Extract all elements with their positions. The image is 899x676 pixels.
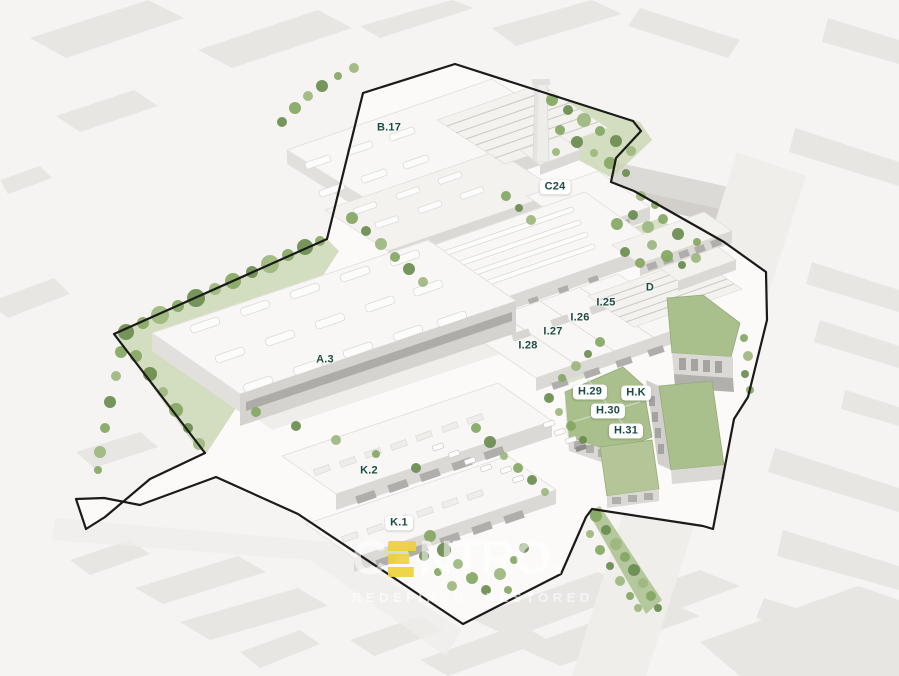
building-label-a3: A.3 <box>316 355 334 366</box>
masterplan-render: B.17 C24 A.3 I.25 I.26 I.27 I.28 D H.29 … <box>0 0 899 676</box>
building-label-d: D <box>646 283 654 294</box>
building-label-i26: I.26 <box>570 313 589 324</box>
building-label-k2: K.2 <box>360 466 378 477</box>
building-label-h31: H.31 <box>609 424 643 439</box>
building-label-h30: H.30 <box>591 404 625 419</box>
building-h-lower-row <box>600 440 659 508</box>
building-label-b17: B.17 <box>377 123 401 134</box>
building-label-i27: I.27 <box>543 327 562 338</box>
building-label-c24: C24 <box>540 180 571 195</box>
building-label-h29: H.29 <box>573 385 607 400</box>
building-label-hk: H.K <box>621 386 651 401</box>
building-label-k1: K.1 <box>385 516 413 531</box>
building-label-i25: I.25 <box>596 298 615 309</box>
site-plan-render <box>0 0 899 676</box>
building-label-i28: I.28 <box>518 341 537 352</box>
